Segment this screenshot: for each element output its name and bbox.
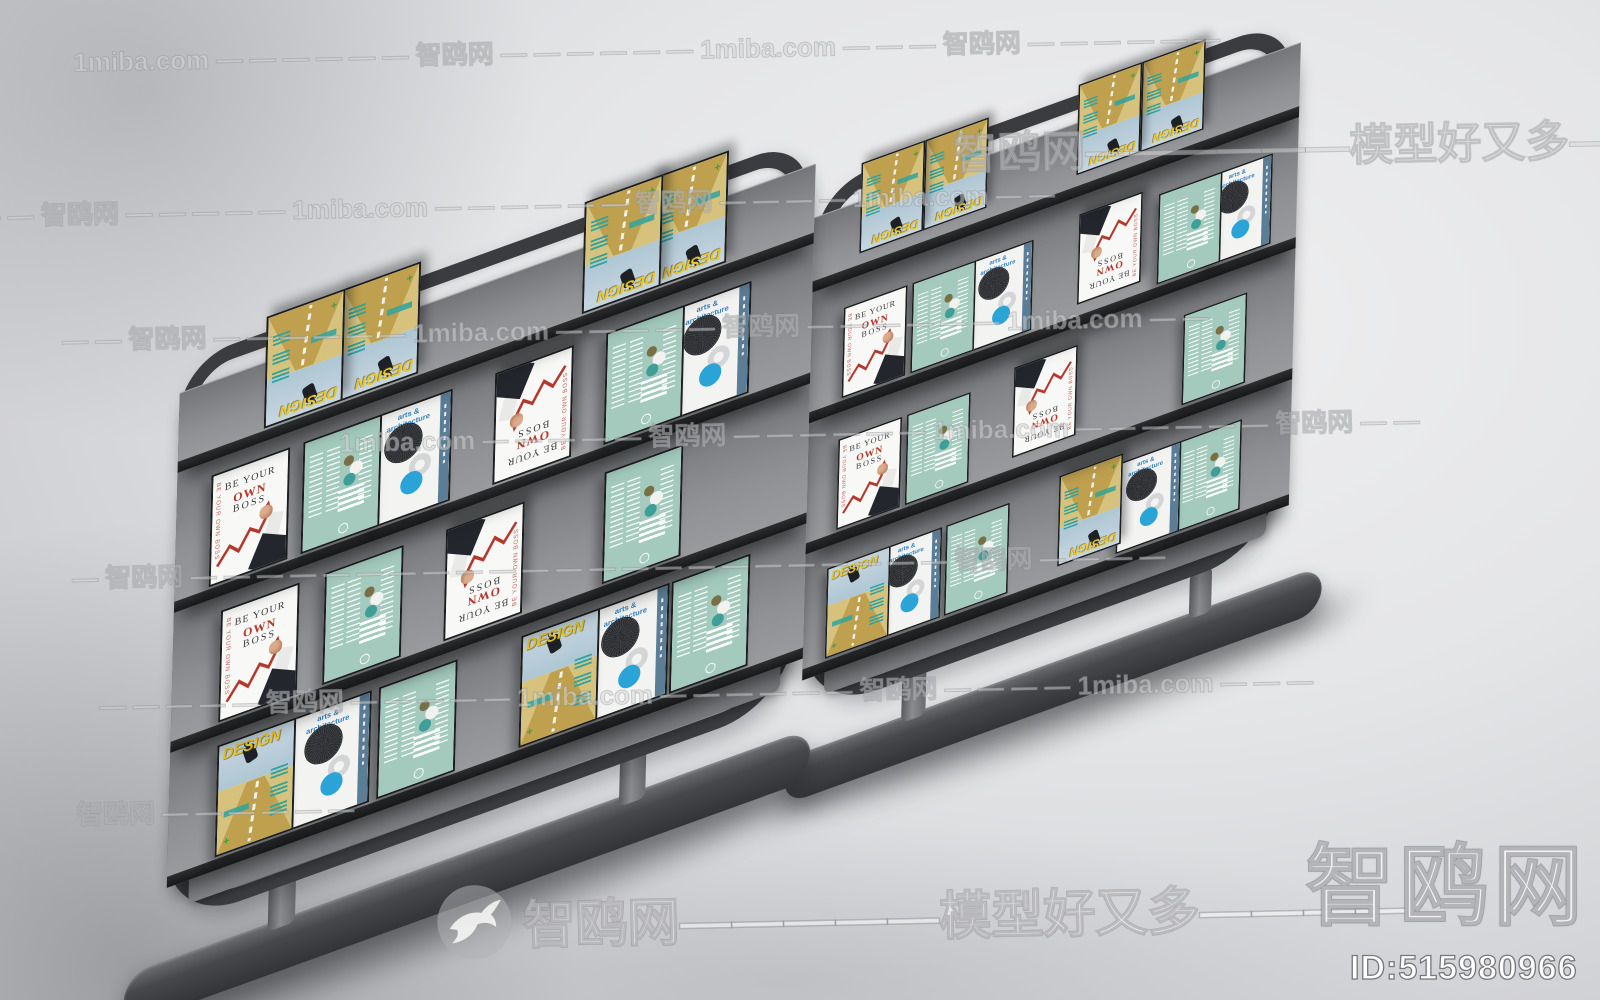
design-cover-cross-icon: + [1111, 462, 1116, 470]
design-cover-cross-icon: + [223, 836, 230, 846]
teal-cover-text-column [309, 452, 324, 519]
design-cover-cross-icon: + [330, 300, 337, 310]
teal-cover-text-column [677, 592, 692, 659]
design-cover-cross-icon: + [406, 273, 413, 283]
magazine-cover-boss: BE YOUR OWN BOSSBE YOUROWNBOSS [1012, 344, 1078, 457]
design-cover-cross-icon: + [649, 185, 656, 195]
arts-cover-spine [930, 529, 940, 619]
arts-cover-spine [1261, 155, 1271, 245]
site-logo-text: 智鸥网 [1306, 816, 1588, 943]
arts-cover-spine [655, 586, 668, 698]
teal-cover-text-column [917, 291, 929, 345]
teal-cover-text-column [330, 583, 345, 650]
design-cover-cross-icon: + [1194, 48, 1199, 56]
magazine-cover-boss: BE YOUR OWN BOSSBE YOUROWNBOSS [1077, 191, 1143, 304]
site-brand-corner: 智鸥网 ID:515980966 [1306, 816, 1588, 988]
design-cover-cross-icon: + [526, 727, 533, 737]
arts-cover-spine [357, 693, 370, 805]
arts-cover-spine [1169, 443, 1179, 533]
boss-cover-arrow-chart [1077, 191, 1141, 303]
teal-cover-text-column [384, 697, 399, 764]
teal-cover-text-column [1188, 322, 1200, 376]
render-canvas: DESIGN+DESIGN+DESIGN+DESIGN+BE YOUR OWN … [0, 0, 1600, 1000]
magazine-cover-design: DESIGN+ [859, 140, 925, 253]
design-cover-cross-icon: + [1130, 71, 1135, 79]
teal-cover-text-column [1163, 202, 1175, 256]
arts-cover-spine [1022, 241, 1032, 331]
teal-cover-text-column [612, 343, 627, 410]
arts-cover-spine [736, 284, 749, 396]
magazine-cover-design: DESIGN+ [1057, 453, 1123, 566]
arts-cover-spine [438, 391, 451, 503]
design-cover-cross-icon: + [831, 641, 836, 649]
design-cover-cross-icon: + [913, 149, 918, 157]
teal-cover-text-column [950, 533, 962, 587]
boss-cover-arrow-chart [1012, 344, 1076, 456]
magazine-cover-design: DESIGN+ [1076, 62, 1142, 175]
teal-cover-text-column [610, 482, 625, 549]
magazine-cover-design: DESIGN+ [923, 117, 989, 230]
magazine-cover-design: DESIGN+ [1140, 39, 1206, 152]
model-id-label: ID:515980966 [1350, 949, 1588, 988]
teal-cover-text-column [911, 422, 923, 476]
design-cover-cross-icon: + [714, 161, 721, 171]
design-cover-cross-icon: + [977, 126, 982, 134]
teal-cover-text-column [1182, 450, 1194, 504]
